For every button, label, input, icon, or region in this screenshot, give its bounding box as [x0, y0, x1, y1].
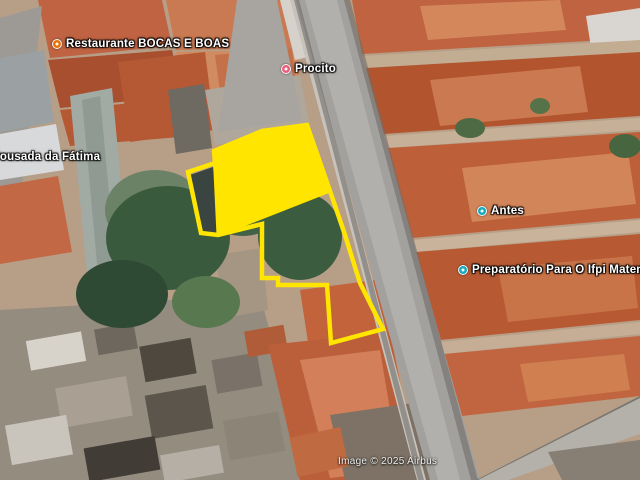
- imagery-attribution: Image © 2025 Airbus: [338, 456, 437, 467]
- poi-label: Preparatório Para O Ifpi Matemática E: [472, 264, 640, 276]
- poi-label: Procito: [295, 63, 336, 75]
- service-poi-icon: [477, 206, 487, 216]
- poi-label: Pousada da Fátima: [0, 151, 100, 163]
- map-canvas[interactable]: Restaurante BOCAS E BOAS Pousada da Fáti…: [0, 0, 640, 480]
- poi-restaurante[interactable]: Restaurante BOCAS E BOAS: [52, 38, 229, 50]
- poi-label: Restaurante BOCAS E BOAS: [66, 38, 229, 50]
- poi-label: Antes: [491, 205, 524, 217]
- school-poi-icon: [458, 265, 468, 275]
- imagery-shape: [455, 118, 485, 138]
- imagery-shape: [530, 98, 550, 114]
- poi-antes[interactable]: Antes: [477, 205, 524, 217]
- imagery-shape: [76, 260, 168, 328]
- restaurant-poi-icon: [52, 39, 62, 49]
- poi-procito[interactable]: Procito: [281, 63, 336, 75]
- place-poi-icon: [281, 64, 291, 74]
- imagery-shape: [172, 276, 240, 328]
- poi-pousada[interactable]: Pousada da Fátima: [0, 151, 100, 163]
- imagery-shape: [609, 134, 640, 158]
- poi-preparatorio[interactable]: Preparatório Para O Ifpi Matemática E: [458, 264, 640, 276]
